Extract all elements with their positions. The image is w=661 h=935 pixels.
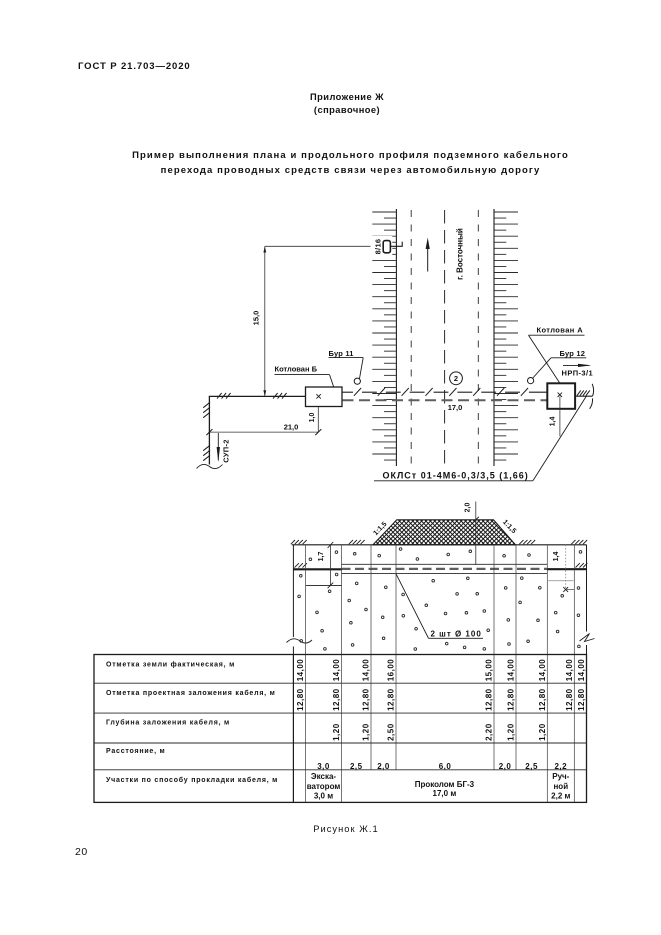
svg-text:17,0: 17,0 xyxy=(448,403,463,412)
svg-text:2,50: 2,50 xyxy=(387,723,396,741)
svg-text:Расстояние, м: Расстояние, м xyxy=(106,748,166,755)
svg-text:СУП-2: СУП-2 xyxy=(222,439,231,463)
svg-text:14,00: 14,00 xyxy=(577,659,586,682)
svg-text:12,80: 12,80 xyxy=(577,688,586,711)
svg-text:15,00: 15,00 xyxy=(485,659,494,682)
svg-text:12,80: 12,80 xyxy=(565,688,574,711)
svg-text:Экска-: Экска- xyxy=(311,772,336,781)
svg-text:г. Восточный: г. Восточный xyxy=(456,228,465,280)
svg-text:12,80: 12,80 xyxy=(332,688,341,711)
svg-text:21,0: 21,0 xyxy=(284,423,299,432)
svg-text:1,20: 1,20 xyxy=(507,723,516,741)
svg-text:17,0 м: 17,0 м xyxy=(433,789,457,798)
svg-text:14,00: 14,00 xyxy=(565,659,574,682)
svg-text:1,4: 1,4 xyxy=(553,552,560,562)
svg-text:2: 2 xyxy=(454,374,458,383)
svg-text:Отметка земли фактическая, м: Отметка земли фактическая, м xyxy=(106,662,235,669)
svg-text:14,00: 14,00 xyxy=(538,659,547,682)
svg-text:ОКЛСт 01-4М6-0,3/3,5 (1,66): ОКЛСт 01-4М6-0,3/3,5 (1,66) xyxy=(383,471,529,481)
svg-text:14,00: 14,00 xyxy=(362,659,371,682)
svg-text:Бур 11: Бур 11 xyxy=(329,349,354,358)
svg-text:1,20: 1,20 xyxy=(362,723,371,741)
svg-text:2,2: 2,2 xyxy=(554,762,567,771)
svg-text:Проколом БГ-3: Проколом БГ-3 xyxy=(415,780,475,789)
svg-text:2,20: 2,20 xyxy=(485,723,494,741)
svg-text:12,80: 12,80 xyxy=(387,688,396,711)
svg-text:Бур 12: Бур 12 xyxy=(560,349,586,358)
svg-text:2,0: 2,0 xyxy=(377,762,390,771)
svg-text:2,5: 2,5 xyxy=(525,762,538,771)
svg-text:2,2 м: 2,2 м xyxy=(551,792,570,801)
svg-text:Котлован А: Котлован А xyxy=(537,325,584,334)
svg-text:6,0: 6,0 xyxy=(439,762,452,771)
svg-text:1,7: 1,7 xyxy=(318,552,325,562)
svg-text:Руч-: Руч- xyxy=(552,772,569,781)
svg-text:14,00: 14,00 xyxy=(332,659,341,682)
svg-text:1,4: 1,4 xyxy=(550,417,557,427)
svg-text:16,00: 16,00 xyxy=(387,659,396,682)
svg-text:НРП-3/1: НРП-3/1 xyxy=(562,369,594,378)
svg-text:3,0 м: 3,0 м xyxy=(314,792,333,801)
svg-text:8/16: 8/16 xyxy=(374,239,383,255)
svg-text:1,20: 1,20 xyxy=(332,723,341,741)
svg-text:2,5: 2,5 xyxy=(350,762,363,771)
svg-text:ватором: ватором xyxy=(307,782,341,791)
svg-text:Отметка проектная заложения ка: Отметка проектная заложения кабеля, м xyxy=(106,689,276,697)
svg-text:Участки по способу прокладки к: Участки по способу прокладки кабеля, м xyxy=(106,776,278,784)
svg-text:3,0: 3,0 xyxy=(317,762,330,771)
svg-text:2,0: 2,0 xyxy=(499,762,512,771)
svg-text:Глубина заложения кабеля, м: Глубина заложения кабеля, м xyxy=(106,718,230,726)
svg-text:12,80: 12,80 xyxy=(296,688,305,711)
svg-text:Котлован Б: Котлован Б xyxy=(275,365,318,374)
svg-text:12,80: 12,80 xyxy=(507,688,516,711)
svg-text:2 шт Ø 100: 2 шт Ø 100 xyxy=(431,630,482,639)
svg-text:1,20: 1,20 xyxy=(538,723,547,741)
svg-text:14,00: 14,00 xyxy=(507,659,516,682)
svg-text:12,80: 12,80 xyxy=(538,688,547,711)
svg-text:14,00: 14,00 xyxy=(296,659,305,682)
svg-text:12,80: 12,80 xyxy=(485,688,494,711)
svg-text:15,0: 15,0 xyxy=(252,311,261,326)
svg-text:ной: ной xyxy=(553,782,568,791)
svg-text:1,0: 1,0 xyxy=(309,413,316,423)
svg-text:2,0: 2,0 xyxy=(465,503,472,513)
svg-text:12,80: 12,80 xyxy=(362,688,371,711)
